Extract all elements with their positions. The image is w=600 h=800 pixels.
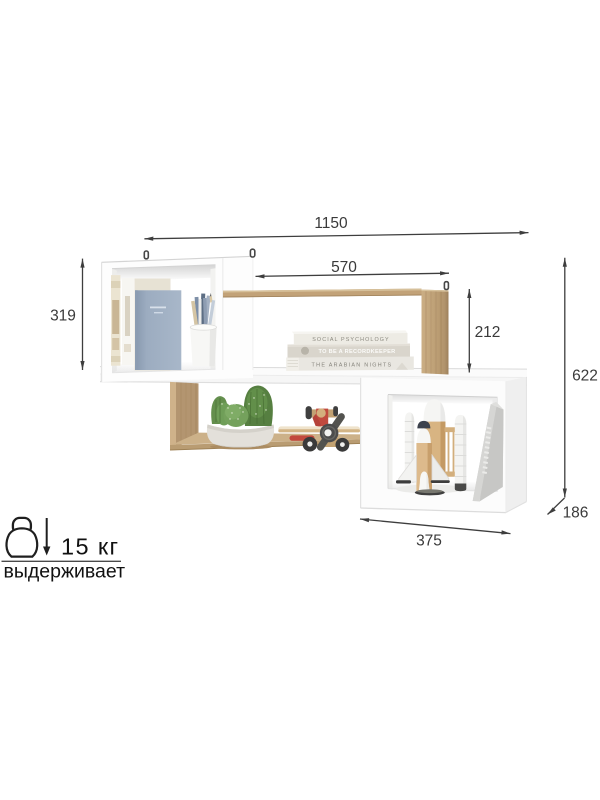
svg-text:570: 570 xyxy=(331,259,357,276)
svg-text:375: 375 xyxy=(416,532,442,549)
svg-text:622: 622 xyxy=(572,368,598,385)
svg-text:1150: 1150 xyxy=(314,215,348,232)
svg-text:SOCIAL PSYCHOLOGY: SOCIAL PSYCHOLOGY xyxy=(312,337,390,343)
svg-text:TO BE A RECORDKEEPER: TO BE A RECORDKEEPER xyxy=(319,349,396,355)
svg-text:выдерживает: выдерживает xyxy=(4,561,126,583)
svg-text:319: 319 xyxy=(50,308,76,325)
svg-text:THE ARABIAN NIGHTS: THE ARABIAN NIGHTS xyxy=(312,363,393,369)
svg-text:212: 212 xyxy=(475,324,501,341)
svg-text:15 кг: 15 кг xyxy=(61,534,120,560)
svg-text:186: 186 xyxy=(563,505,589,522)
